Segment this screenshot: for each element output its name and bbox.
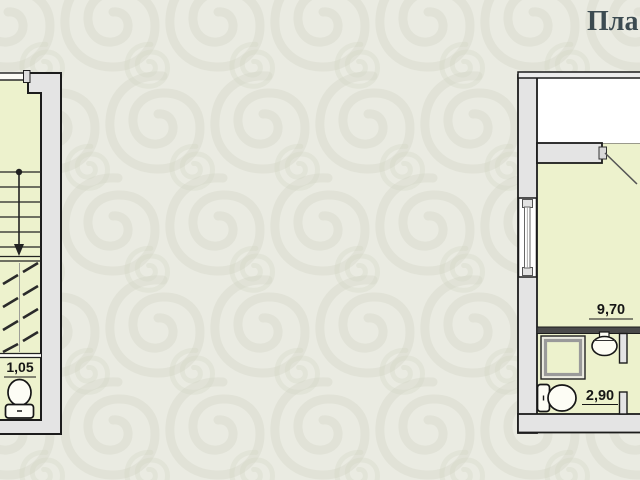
bathroom-door-jamb-upper bbox=[620, 334, 628, 364]
top-wall bbox=[518, 72, 640, 78]
shower-icon bbox=[541, 336, 585, 379]
hall-partition-wall bbox=[537, 143, 602, 163]
toilet-icon-right bbox=[538, 385, 577, 412]
wc-partition bbox=[0, 354, 41, 358]
left-plan-stair-section: 1,05 bbox=[0, 71, 61, 435]
wc-area-label: 1,05 bbox=[6, 359, 33, 375]
toilet-icon bbox=[6, 380, 34, 419]
right-plan-apartment: 9,70 2,90 bbox=[518, 72, 640, 433]
upper-room-floor bbox=[537, 78, 640, 143]
bathroom-partition bbox=[537, 327, 640, 334]
floorplan-drawing: 1,05 bbox=[0, 0, 640, 480]
bottom-wall bbox=[518, 414, 640, 433]
room-area-label: 9,70 bbox=[597, 302, 625, 318]
stair-window-endcap bbox=[24, 71, 31, 83]
bathroom-door-jamb-lower bbox=[620, 392, 628, 414]
window-icon bbox=[519, 198, 537, 277]
floorplan-page: 1,05 bbox=[0, 0, 640, 480]
page-title: Пла bbox=[587, 6, 639, 38]
bath-area-label: 2,90 bbox=[586, 388, 614, 404]
